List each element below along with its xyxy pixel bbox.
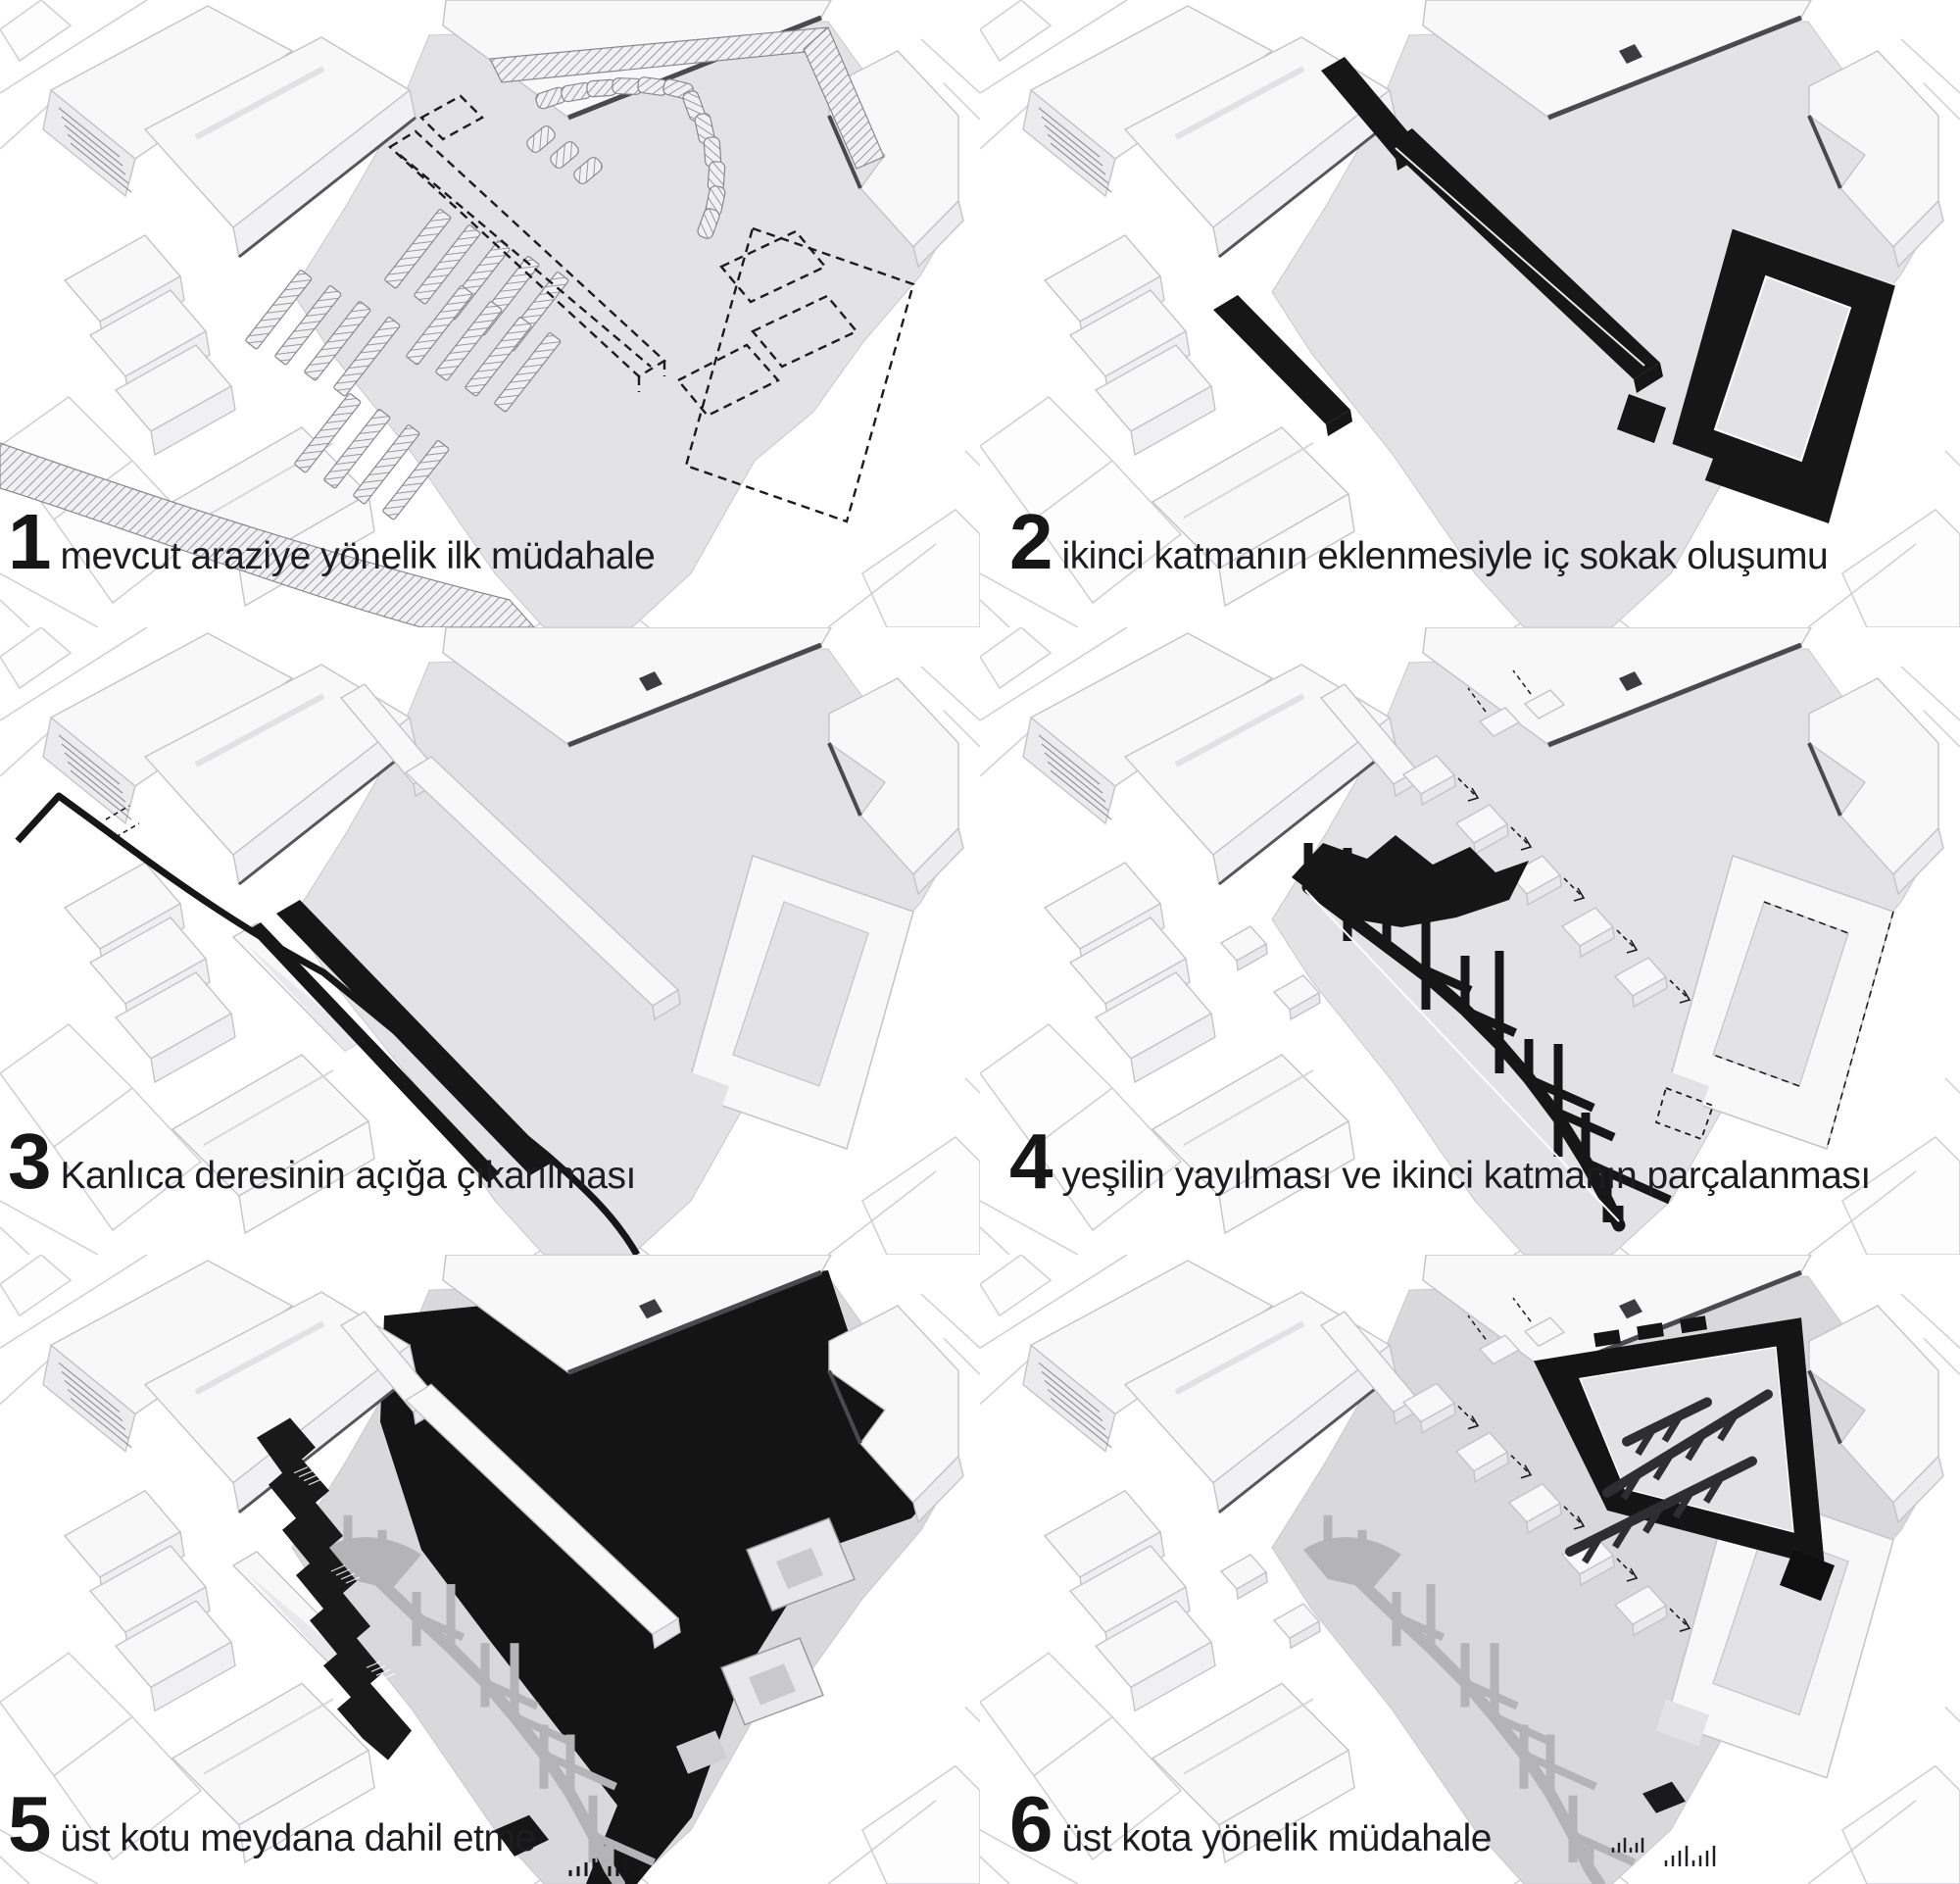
step-1-diagram [0,0,980,627]
step-4-panel: 4 yeşilin yayılması ve ikinci katmanın p… [980,627,1960,1255]
panel-grid: 1 mevcut araziye yönelik ilk müdahale 2 … [0,0,1960,1884]
step-2-panel: 2 ikinci katmanın eklenmesiyle iç sokak … [980,0,1960,627]
step-5-diagram [0,1255,980,1884]
step-6-panel: 6 üst kota yönelik müdahale [980,1255,1960,1884]
step-3-panel: 3 Kanlıca deresinin açığa çıkarılması [0,627,980,1255]
step-4-diagram [980,627,1960,1255]
process-diagram-sheet: 1 mevcut araziye yönelik ilk müdahale 2 … [0,0,1960,1884]
step-6-diagram [980,1255,1960,1884]
step-1-panel: 1 mevcut araziye yönelik ilk müdahale [0,0,980,627]
step-2-diagram [980,0,1960,627]
step-3-diagram [0,627,980,1255]
step-5-panel: 5 üst kotu meydana dahil etme [0,1255,980,1884]
